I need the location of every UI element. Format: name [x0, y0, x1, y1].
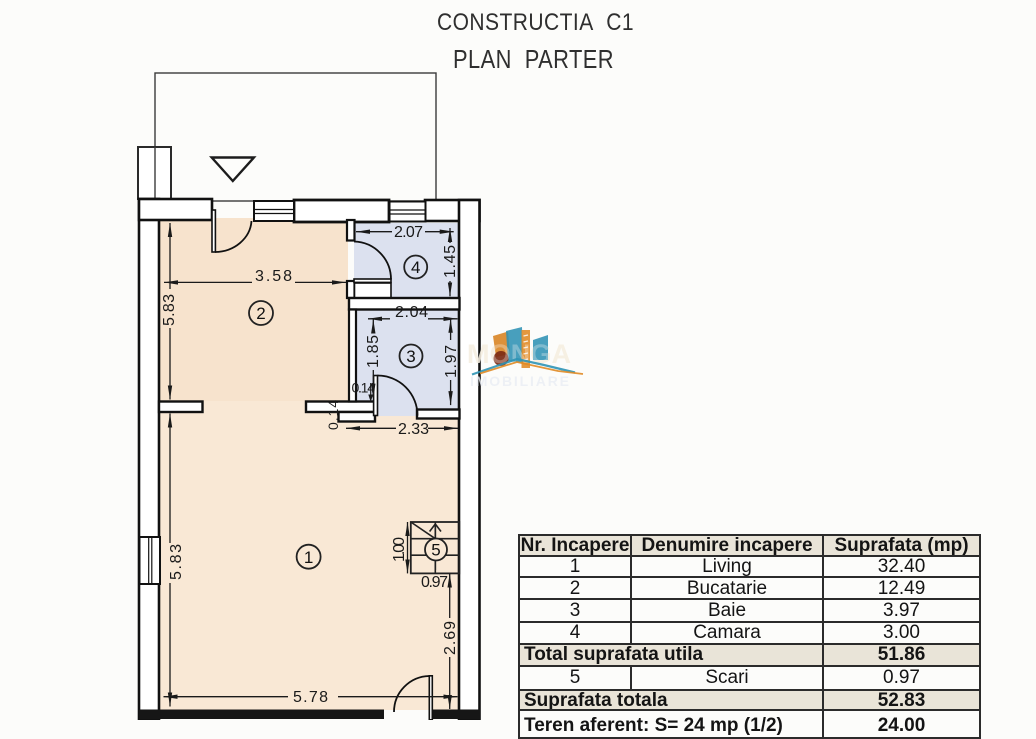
svg-text:0.14: 0.14 — [325, 400, 341, 430]
svg-text:MONGA: MONGA — [467, 339, 573, 369]
svg-text:2.04: 2.04 — [395, 304, 428, 321]
svg-text:1.97: 1.97 — [443, 345, 460, 378]
svg-text:2.69: 2.69 — [442, 621, 459, 655]
svg-text:2.07: 2.07 — [394, 224, 423, 241]
svg-text:4: 4 — [411, 258, 420, 277]
svg-text:5: 5 — [431, 541, 440, 560]
svg-text:1.00: 1.00 — [391, 537, 408, 562]
svg-text:0.14: 0.14 — [352, 380, 376, 396]
svg-text:5.83: 5.83 — [168, 544, 185, 580]
svg-text:1.85: 1.85 — [365, 335, 382, 368]
svg-text:1.45: 1.45 — [442, 245, 459, 278]
svg-text:2: 2 — [256, 304, 265, 323]
svg-text:5.83: 5.83 — [161, 294, 178, 326]
svg-text:3: 3 — [406, 347, 415, 366]
svg-text:0.97: 0.97 — [421, 574, 448, 591]
svg-text:1: 1 — [304, 548, 313, 567]
svg-text:5.78: 5.78 — [293, 689, 328, 706]
svg-text:IMOBILIARE: IMOBILIARE — [470, 373, 572, 389]
svg-text:3.58: 3.58 — [255, 268, 292, 285]
svg-text:2.33: 2.33 — [398, 421, 429, 438]
